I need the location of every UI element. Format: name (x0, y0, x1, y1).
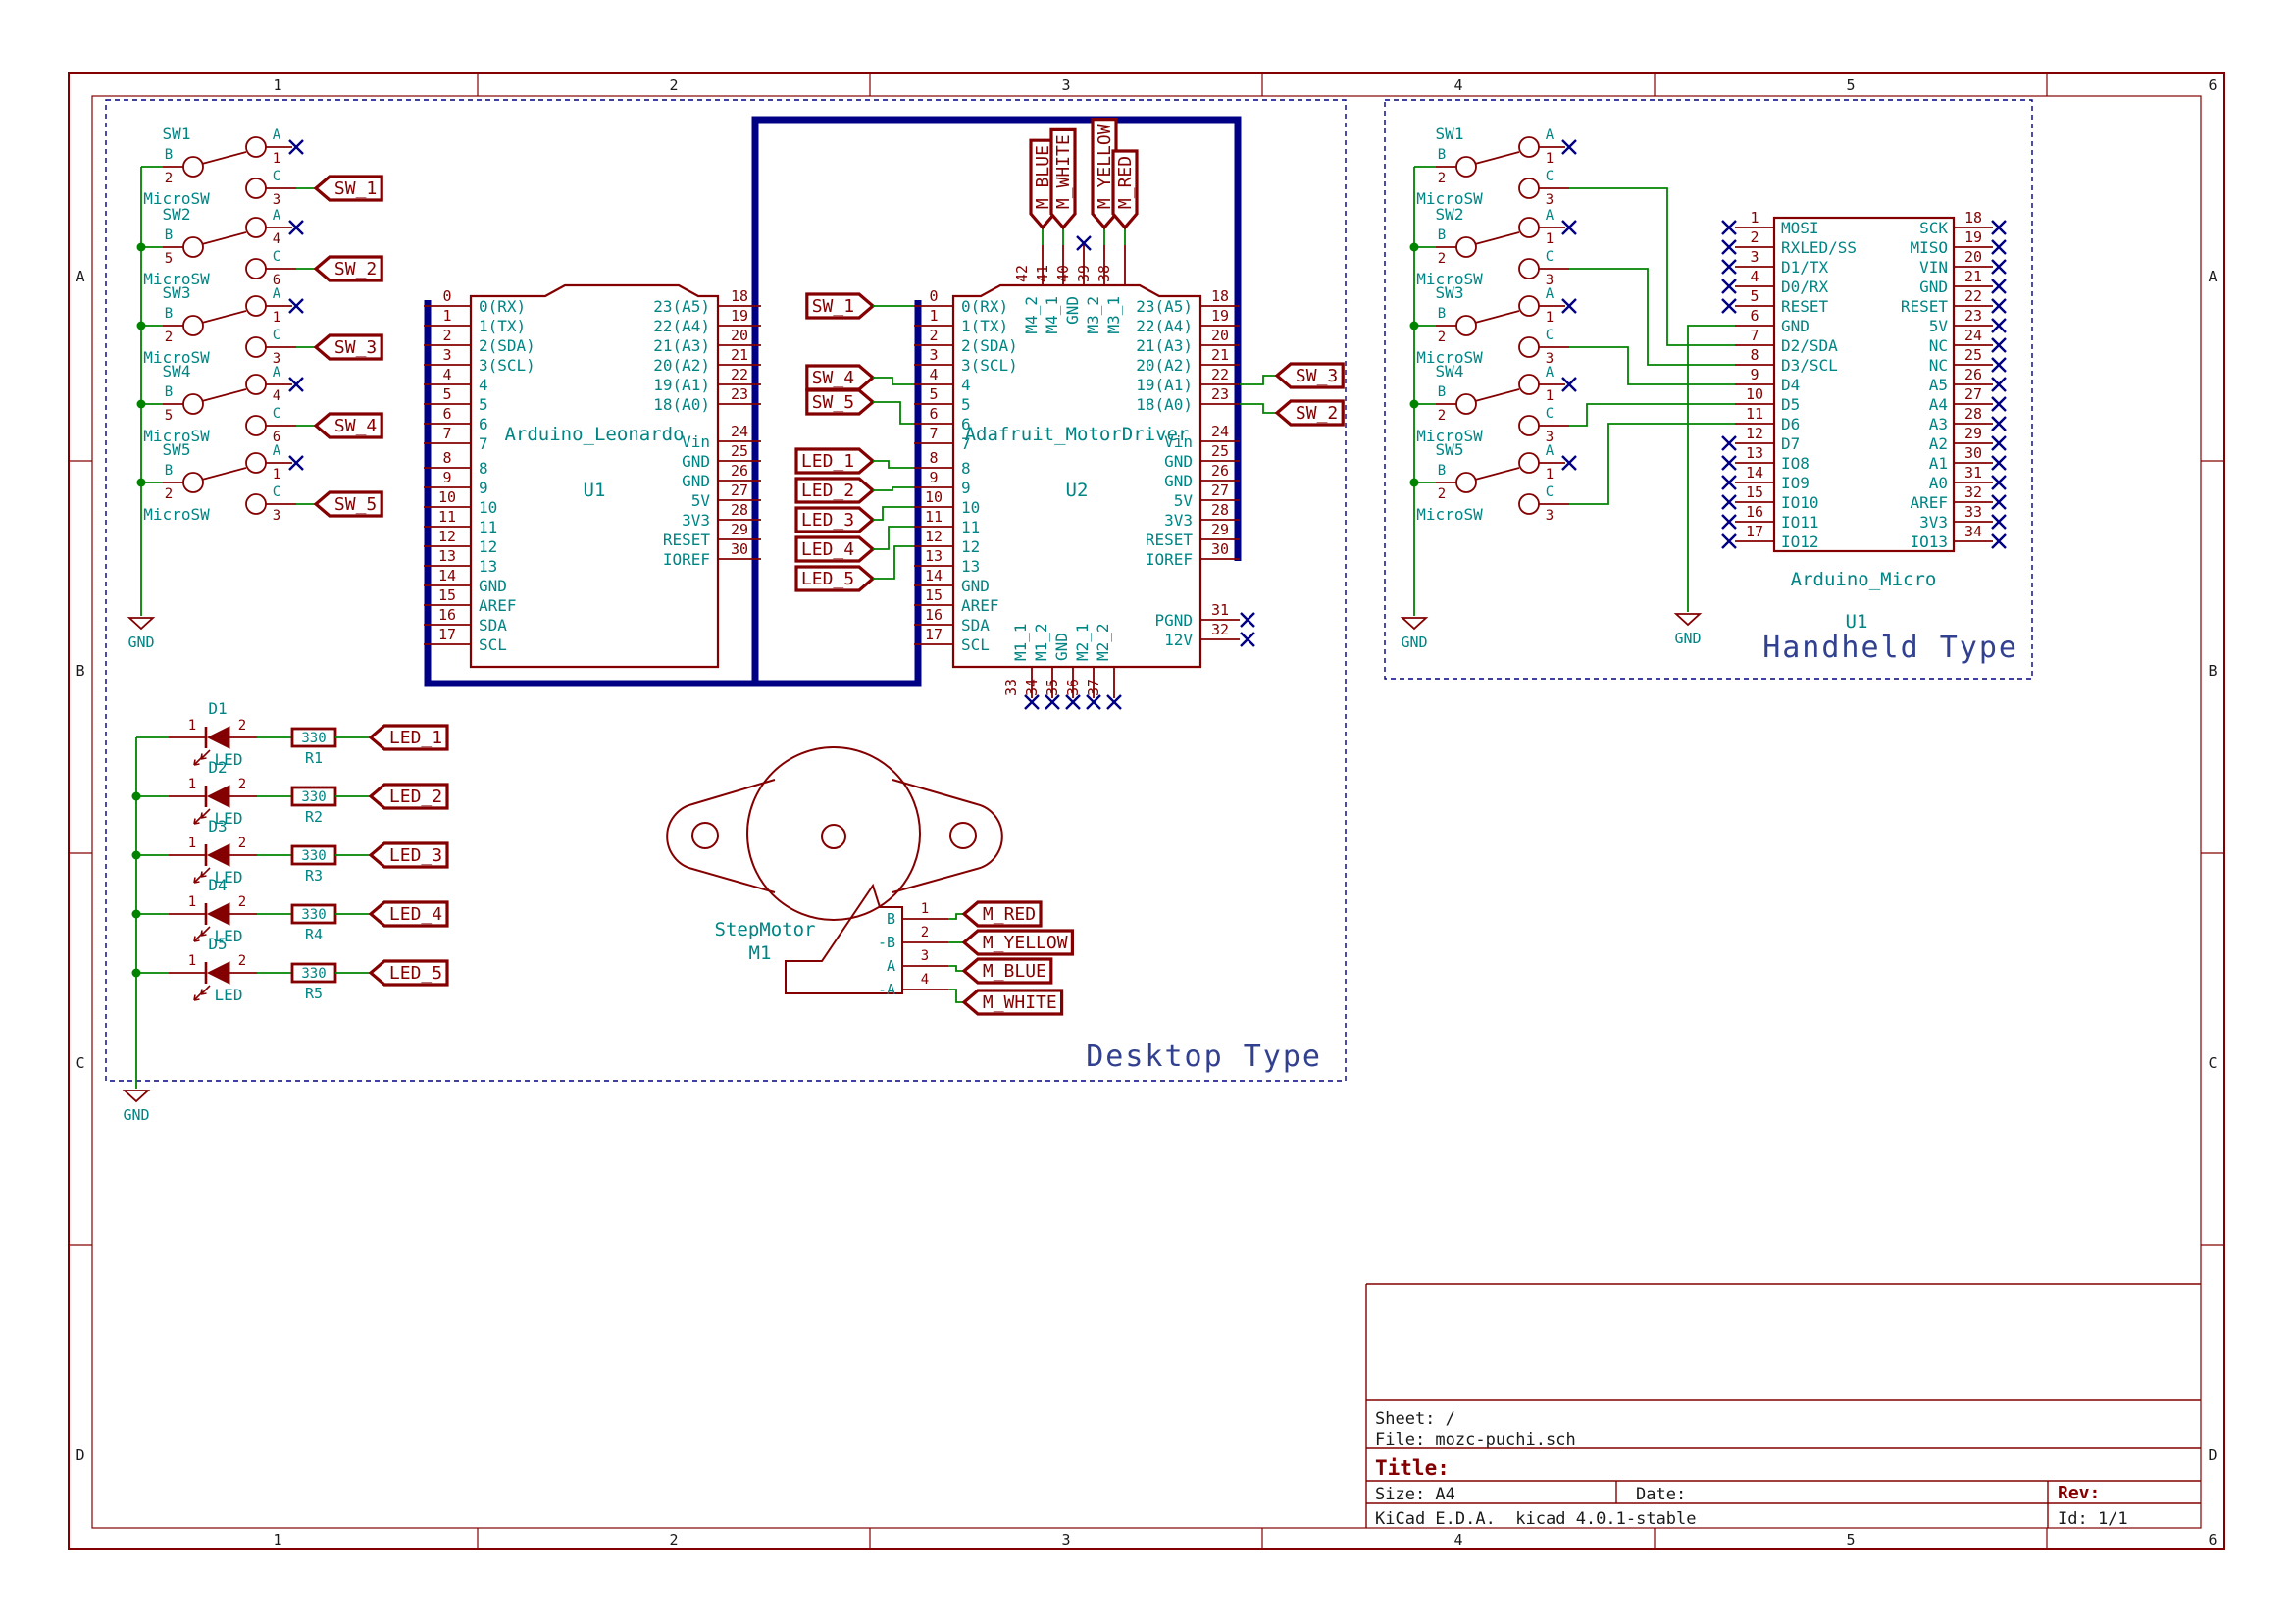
pin-number: 1 (188, 718, 196, 734)
pin-number: 2 (238, 836, 246, 851)
switch-contact[interactable] (183, 157, 203, 177)
pin-number: 2 (442, 327, 451, 344)
motor-ear-hole[interactable] (692, 823, 718, 848)
pin-number: 21 (1964, 268, 1982, 285)
pin-number: 3 (921, 948, 929, 964)
hier-label-sw_3-text: SW_3 (334, 337, 377, 358)
switch-contact[interactable] (246, 178, 266, 198)
pin-name: 4 (961, 376, 971, 394)
wire[interactable] (1240, 376, 1277, 384)
junction-dot[interactable] (132, 851, 141, 860)
led-triangle[interactable] (208, 727, 229, 748)
pin-number: 16 (925, 606, 943, 624)
pin-number: 14 (438, 567, 456, 584)
pin-name: B (165, 463, 173, 479)
wire[interactable] (948, 966, 964, 971)
pin-name: D1/TX (1781, 258, 1829, 277)
switch-contact[interactable] (246, 296, 266, 316)
pin-name: A3 (1929, 415, 1948, 433)
switch-lever[interactable] (202, 232, 246, 244)
junction-dot[interactable] (137, 243, 146, 252)
gnd-label: GND (127, 634, 154, 651)
hier-label-led_5-text: LED_5 (389, 963, 442, 984)
wire[interactable] (873, 487, 914, 490)
pin-number: 22 (731, 366, 748, 383)
pin-name: A (1546, 208, 1555, 224)
hier-label-sw_1-text: SW_1 (812, 296, 854, 317)
wire[interactable] (948, 914, 964, 919)
pin-number: 3 (1546, 192, 1554, 208)
junction-dot[interactable] (137, 322, 146, 330)
switch-contact[interactable] (183, 473, 203, 492)
border-col-label: 4 (1453, 1531, 1462, 1548)
switch-contact[interactable] (1519, 218, 1539, 237)
pin-number: 28 (1964, 405, 1982, 423)
switch-lever[interactable] (1475, 232, 1519, 244)
pin-name: GND (1164, 452, 1193, 471)
border-col-label: 4 (1453, 76, 1462, 94)
pin-number: 33 (1002, 679, 1020, 696)
pin-number: 28 (1211, 501, 1229, 519)
component-ref: SW3 (163, 283, 191, 302)
hier-label-led_1-text: LED_1 (801, 451, 854, 472)
wire[interactable] (873, 507, 914, 520)
pin-number: 1 (188, 777, 196, 792)
titleblock-title-label: Title: (1375, 1456, 1450, 1480)
pin-number: 7 (1750, 327, 1759, 344)
led-triangle[interactable] (208, 903, 229, 925)
hier-label-m_white-text: M_WHITE (1053, 134, 1074, 209)
pin-name: 11 (961, 518, 980, 536)
wire[interactable] (873, 378, 914, 384)
pin-number: 25 (731, 442, 748, 460)
pin-name: B (1438, 463, 1446, 479)
pin-name: C (1546, 484, 1554, 500)
titleblock-kicad-version: KiCad E.D.A. kicad 4.0.1-stable (1375, 1509, 1697, 1529)
pin-number: 40 (1054, 265, 1072, 282)
pin-name: SCL (961, 635, 990, 654)
switch-contact[interactable] (246, 337, 266, 357)
pin-name: A (273, 208, 281, 224)
pin-number: 31 (1211, 601, 1229, 619)
pin-number: 6 (929, 405, 938, 423)
pin-name: A (273, 443, 281, 459)
pin-name: 5V (1929, 317, 1949, 335)
resistor-ref: R3 (305, 867, 323, 885)
pin-name: VIN (1919, 258, 1948, 277)
pin-name: AREF (961, 596, 999, 615)
pin-number: 3 (273, 508, 280, 524)
switch-lever[interactable] (1475, 468, 1519, 480)
wire[interactable] (1569, 347, 1735, 384)
pin-name: 12 (479, 537, 497, 556)
component-ref: D3 (208, 817, 227, 836)
pin-name: 9 (479, 479, 488, 497)
pin-number: 7 (929, 425, 938, 442)
pin-number: 20 (1211, 327, 1229, 344)
pin-number: 10 (925, 488, 943, 506)
pin-number: 2 (921, 925, 929, 940)
pin-name: A (1546, 365, 1555, 381)
switch-contact[interactable] (1519, 259, 1539, 279)
led-emission-arrow (194, 878, 195, 884)
switch-contact[interactable] (246, 494, 266, 514)
pin-name: 3(SCL) (479, 356, 535, 375)
kicad-schematic-sheet: 112233445566AABBCCDD00(RX)11(TX)22(SDA)3… (0, 0, 2294, 1624)
pin-name: D7 (1781, 434, 1800, 453)
hier-label-sw_5-text: SW_5 (812, 392, 854, 413)
pin-name: A4 (1929, 395, 1948, 414)
led-emission-arrow (194, 995, 195, 1001)
pin-name: 11 (479, 518, 497, 536)
pin-name: 1(TX) (961, 317, 1008, 335)
wire[interactable] (1569, 188, 1735, 345)
pin-number: 11 (1746, 405, 1763, 423)
pin-number: 16 (1746, 503, 1763, 521)
pin-number: 42 (1013, 265, 1031, 282)
pin-name: M2_1 (1073, 623, 1092, 661)
component-ref: D4 (208, 876, 227, 894)
pin-number: 36 (1064, 679, 1082, 696)
border-col-label: 2 (669, 1531, 678, 1548)
pin-number: 13 (438, 547, 456, 565)
border-col-label: 6 (2208, 1531, 2217, 1548)
pin-name: 4 (479, 376, 488, 394)
switch-contact[interactable] (246, 416, 266, 435)
pin-name: NC (1929, 356, 1948, 375)
component-ref: SW5 (1436, 440, 1464, 459)
switch-lever[interactable] (202, 311, 246, 323)
pin-number: 25 (1964, 346, 1982, 364)
switch-contact[interactable] (246, 259, 266, 279)
switch-contact[interactable] (1456, 316, 1476, 335)
junction-dot[interactable] (132, 969, 141, 978)
pin-number: 32 (1211, 621, 1229, 638)
pin-number: 2 (238, 718, 246, 734)
pin-number: 4 (442, 366, 451, 383)
pin-number: 27 (1211, 482, 1229, 499)
pin-name: IO12 (1781, 533, 1819, 551)
switch-contact[interactable] (246, 375, 266, 394)
pin-name: AREF (479, 596, 517, 615)
pin-number: 29 (1964, 425, 1982, 442)
schematic-canvas[interactable]: 112233445566AABBCCDD00(RX)11(TX)22(SDA)3… (0, 0, 2294, 1624)
gnd-symbol[interactable] (1676, 614, 1700, 625)
switch-lever[interactable] (202, 389, 246, 401)
pin-name: IOREF (1146, 550, 1193, 569)
hier-label-m_white-text: M_WHITE (983, 992, 1057, 1013)
pin-name: C (1546, 249, 1554, 265)
switch-contact[interactable] (246, 137, 266, 157)
pin-name: GND (1781, 317, 1810, 335)
pin-number: 4 (929, 366, 938, 383)
switch-lever[interactable] (1475, 311, 1519, 323)
switch-contact[interactable] (246, 453, 266, 473)
wire[interactable] (873, 402, 914, 424)
pin-number: 2 (165, 171, 173, 186)
switch-contact[interactable] (1456, 157, 1476, 177)
wire[interactable] (1240, 404, 1277, 413)
border-row-label: D (76, 1446, 84, 1464)
gnd-symbol[interactable] (125, 1091, 148, 1101)
pin-number: 9 (929, 469, 938, 486)
motor-body[interactable] (747, 747, 920, 920)
pin-number: 30 (1964, 444, 1982, 462)
pin-number: 26 (731, 462, 748, 480)
pin-name: GND (961, 577, 990, 595)
pin-number: 34 (1023, 679, 1041, 696)
wire[interactable] (873, 461, 914, 468)
border-col-label: 3 (1061, 1531, 1070, 1548)
wire[interactable] (948, 990, 964, 1002)
pin-number: 24 (731, 423, 748, 440)
pin-name: SDA (479, 616, 507, 634)
switch-contact[interactable] (1519, 494, 1539, 514)
resistor-ref: R4 (305, 926, 323, 943)
pin-number: 1 (1546, 467, 1554, 482)
pin-name: B (165, 228, 173, 243)
resistor-value: 330 (301, 789, 326, 805)
pin-number: 1 (1546, 310, 1554, 326)
pin-name: B (1438, 228, 1446, 243)
junction-dot[interactable] (137, 400, 146, 409)
pin-name: 8 (961, 459, 971, 478)
switch-contact[interactable] (1519, 296, 1539, 316)
switch-contact[interactable] (183, 394, 203, 414)
component-ref: SW5 (163, 440, 191, 459)
switch-contact[interactable] (183, 237, 203, 257)
junction-dot[interactable] (1410, 400, 1419, 409)
component-ref: SW4 (163, 362, 191, 381)
pin-name: A (273, 365, 281, 381)
pin-name: A (273, 286, 281, 302)
pin-name: 6 (479, 415, 488, 433)
wire[interactable] (1569, 404, 1735, 426)
wire[interactable] (1569, 269, 1735, 365)
pin-number: 5 (165, 251, 173, 267)
pin-name: 22(A4) (1136, 317, 1193, 335)
switch-lever[interactable] (1475, 389, 1519, 401)
pin-number: 24 (1964, 327, 1982, 344)
pin-name: A (1546, 127, 1555, 143)
pin-name: 19(A1) (1136, 376, 1193, 394)
led-emission-arrow (194, 937, 195, 942)
pin-number: 20 (731, 327, 748, 344)
pin-name: A (1546, 443, 1555, 459)
pin-name: 22(A4) (653, 317, 710, 335)
pin-name: RESET (1901, 297, 1949, 316)
pin-name: D3/SCL (1781, 356, 1838, 375)
pin-number: 1 (188, 894, 196, 910)
pin-name: 5 (479, 395, 488, 414)
pin-name: M3_2 (1084, 296, 1102, 334)
pin-number: 33 (1964, 503, 1982, 521)
pin-number: 12 (438, 528, 456, 545)
pin-name: 2(SDA) (479, 336, 535, 355)
pin-name: 18(A0) (653, 395, 710, 414)
pin-name: GND (1063, 296, 1082, 325)
pin-name: A2 (1929, 434, 1948, 453)
switch-contact[interactable] (1519, 337, 1539, 357)
wire[interactable] (1569, 424, 1735, 504)
pin-name: C (273, 328, 280, 343)
pin-name: IO10 (1781, 493, 1819, 512)
pin-name: M2_2 (1094, 623, 1112, 661)
pin-number: 17 (1746, 523, 1763, 540)
switch-contact[interactable] (1519, 375, 1539, 394)
border-row-label: C (2208, 1054, 2217, 1072)
component-ref: SW1 (163, 125, 191, 143)
pin-name: B (1438, 384, 1446, 400)
pin-name: A5 (1929, 376, 1948, 394)
switch-contact[interactable] (1519, 416, 1539, 435)
pin-number: 16 (438, 606, 456, 624)
pin-number: 31 (1964, 464, 1982, 482)
switch-lever[interactable] (202, 152, 246, 164)
pin-name: 8 (479, 459, 488, 478)
hier-label-led_4-text: LED_4 (801, 539, 854, 560)
pin-name: C (273, 484, 280, 500)
pin-number: 38 (1096, 265, 1113, 282)
pin-number: 41 (1034, 265, 1051, 282)
hier-label-led_3-text: LED_3 (801, 510, 854, 531)
motor-ear-hole[interactable] (950, 823, 976, 848)
hier-label-sw_5-text: SW_5 (334, 494, 377, 515)
desktop-section-label: Desktop Type (883, 1040, 1322, 1074)
pin-number: 17 (438, 626, 456, 643)
handheld-section-label: Handheld Type (1579, 631, 2018, 665)
switch-contact[interactable] (1519, 137, 1539, 157)
pin-number: 0 (442, 287, 451, 305)
pin-number: 2 (238, 894, 246, 910)
pin-number: 6 (442, 405, 451, 423)
pin-name: RESET (1146, 531, 1194, 549)
hier-label-sw_2-text: SW_2 (334, 259, 377, 279)
pin-name: A1 (1929, 454, 1948, 473)
resistor-value: 330 (301, 966, 326, 982)
gnd-symbol[interactable] (1402, 618, 1426, 629)
pin-name: 1(TX) (479, 317, 526, 335)
pin-number: 12 (1746, 425, 1763, 442)
pin-number: 19 (1964, 228, 1982, 246)
pin-name: M1_1 (1011, 623, 1030, 661)
pin-name: GND (682, 472, 710, 490)
pin-number: 9 (1750, 366, 1759, 383)
junction-dot[interactable] (132, 792, 141, 801)
pin-number: 18 (1964, 209, 1982, 227)
pin-number: 1 (1546, 388, 1554, 404)
pin-number: 8 (929, 449, 938, 467)
pin-name: GND (682, 452, 710, 471)
pin-number: 5 (442, 385, 451, 403)
hier-label-led_2-text: LED_2 (801, 481, 854, 501)
border-col-label: 6 (2208, 76, 2217, 94)
pin-number: 7 (442, 425, 451, 442)
switch-contact[interactable] (183, 316, 203, 335)
component-ref: M1 (749, 942, 772, 964)
pin-name: B (1438, 147, 1446, 163)
pin-name: Vin (682, 432, 710, 451)
pin-name: 10 (961, 498, 980, 517)
pin-name: B (1438, 306, 1446, 322)
pin-number: 30 (1211, 540, 1229, 558)
border-row-label: A (2208, 268, 2217, 285)
gnd-symbol[interactable] (129, 618, 153, 629)
border-col-label: 2 (669, 76, 678, 94)
switch-contact[interactable] (1456, 237, 1476, 257)
hier-label-sw_1-text: SW_1 (334, 178, 377, 199)
pin-number: 12 (925, 528, 943, 545)
led-triangle[interactable] (208, 962, 229, 984)
junction-dot[interactable] (132, 910, 141, 919)
switch-contact[interactable] (1456, 473, 1476, 492)
motor-shaft[interactable] (822, 825, 845, 848)
pin-number: 19 (1211, 307, 1229, 325)
pin-number: 9 (442, 469, 451, 486)
pin-number: 2 (1750, 228, 1759, 246)
pin-number: 19 (731, 307, 748, 325)
pin-number: 2 (165, 330, 173, 345)
pin-number: 10 (1746, 385, 1763, 403)
switch-contact[interactable] (1519, 453, 1539, 473)
pin-number: 1 (188, 953, 196, 969)
pin-number: 3 (442, 346, 451, 364)
pin-number: 32 (1964, 483, 1982, 501)
junction-dot[interactable] (137, 479, 146, 487)
led-triangle[interactable] (208, 786, 229, 807)
pin-name: 0(RX) (961, 297, 1008, 316)
pin-name: 0(RX) (479, 297, 526, 316)
pin-number: 26 (1964, 366, 1982, 383)
pin-number: 10 (438, 488, 456, 506)
switch-lever[interactable] (1475, 152, 1519, 164)
pin-name: 2(SDA) (961, 336, 1018, 355)
switch-contact[interactable] (1456, 394, 1476, 414)
pin-name: -B (878, 934, 895, 951)
component-ref: D5 (208, 935, 227, 953)
led-triangle[interactable] (208, 844, 229, 866)
component-value: MicroSW (1416, 505, 1483, 524)
pin-name: 10 (479, 498, 497, 517)
titleblock-sheet: Sheet: / (1375, 1409, 1455, 1429)
pin-number: 14 (1746, 464, 1763, 482)
pin-name: C (1546, 406, 1554, 422)
pin-number: 34 (1964, 523, 1982, 540)
junction-dot[interactable] (1410, 479, 1419, 487)
component-value: MicroSW (143, 505, 210, 524)
switch-contact[interactable] (1519, 178, 1539, 198)
switch-lever[interactable] (202, 468, 246, 480)
wire[interactable] (1688, 326, 1735, 612)
wire[interactable] (873, 546, 914, 579)
switch-contact[interactable] (246, 218, 266, 237)
pin-number: 1 (921, 901, 929, 917)
pin-name: RESET (663, 531, 711, 549)
pin-name: 13 (961, 557, 980, 576)
sheet-outer-border (69, 73, 2224, 1549)
junction-dot[interactable] (1410, 243, 1419, 252)
component-ref: SW1 (1436, 125, 1464, 143)
pin-number: 2 (1438, 330, 1446, 345)
pin-number: 13 (1746, 444, 1763, 462)
border-col-label: 3 (1061, 76, 1070, 94)
pin-number: 15 (1746, 483, 1763, 501)
hier-label-led_1-text: LED_1 (389, 728, 442, 748)
pin-name: 3V3 (1919, 513, 1948, 532)
pin-name: A (1546, 286, 1555, 302)
junction-dot[interactable] (1410, 322, 1419, 330)
hier-label-m_red-text: M_RED (1115, 156, 1136, 209)
